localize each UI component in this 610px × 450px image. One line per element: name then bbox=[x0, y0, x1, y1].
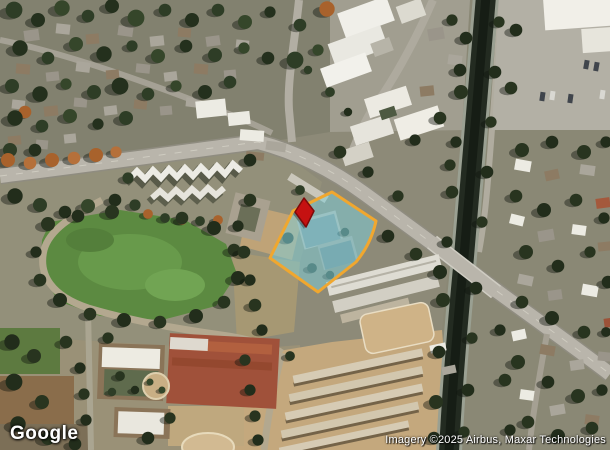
imagery-attribution: Imagery ©2025 Airbus, Maxar Technologies bbox=[385, 434, 606, 446]
google-logo[interactable]: Google bbox=[10, 423, 78, 445]
satellite-imagery[interactable] bbox=[0, 0, 610, 450]
map-viewport[interactable]: Google Imagery ©2025 Airbus, Maxar Techn… bbox=[0, 0, 610, 450]
